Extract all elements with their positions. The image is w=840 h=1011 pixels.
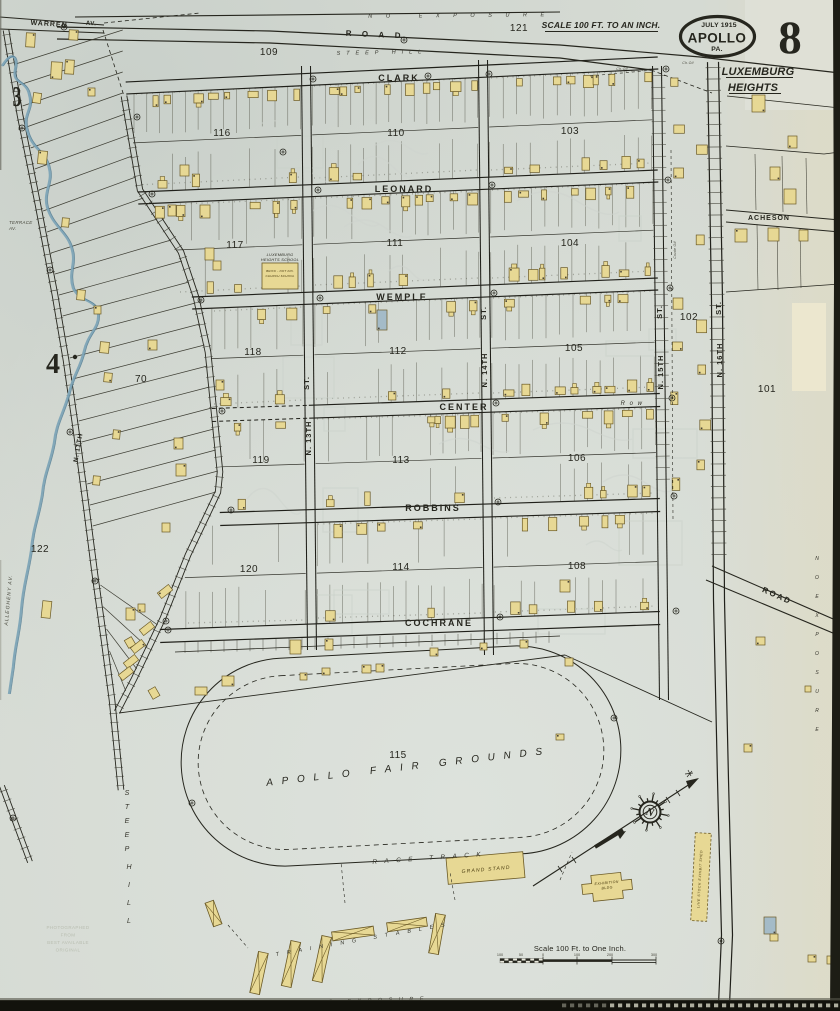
svg-text:WEMPLE: WEMPLE <box>376 292 428 302</box>
svg-text:200: 200 <box>607 953 613 957</box>
svg-text:121: 121 <box>510 23 528 34</box>
svg-text:ST.: ST. <box>302 376 311 390</box>
svg-text:50: 50 <box>519 953 523 957</box>
svg-text:Scale 100 Ft. to One Inch.: Scale 100 Ft. to One Inch. <box>534 944 626 953</box>
svg-text:ROBBINS: ROBBINS <box>405 503 461 513</box>
svg-text:102: 102 <box>680 312 698 323</box>
svg-text:HEIGHTS SCHOOL: HEIGHTS SCHOOL <box>261 258 299 262</box>
svg-text:Crude Oil: Crude Oil <box>673 241 677 258</box>
svg-text:101: 101 <box>758 384 776 395</box>
svg-text:PHOTOGRAPHED: PHOTOGRAPHED <box>47 925 90 930</box>
svg-text:LUXEMBURG: LUXEMBURG <box>267 253 294 257</box>
svg-text:ORIGINAL: ORIGINAL <box>56 948 81 953</box>
svg-text:COCHRANE: COCHRANE <box>405 618 473 628</box>
svg-text:ACHESON: ACHESON <box>748 215 790 222</box>
svg-text:117: 117 <box>226 240 243 251</box>
svg-text:105: 105 <box>565 343 583 354</box>
svg-text:CENTER: CENTER <box>439 402 488 412</box>
svg-text:APOLLO: APOLLO <box>688 31 747 46</box>
svg-text:100: 100 <box>497 953 503 957</box>
svg-text:BEST AVAILABLE: BEST AVAILABLE <box>47 940 89 945</box>
svg-text:Ch.Oil: Ch.Oil <box>616 67 628 71</box>
svg-text:N. 14TH: N. 14TH <box>480 353 489 388</box>
svg-text:113: 113 <box>392 455 409 466</box>
svg-text:110: 110 <box>387 128 404 139</box>
svg-text:109: 109 <box>260 47 278 58</box>
svg-text:114: 114 <box>392 562 409 573</box>
svg-text:HEIGHTS: HEIGHTS <box>728 82 779 94</box>
svg-text:AV.: AV. <box>8 226 17 231</box>
svg-text:108: 108 <box>568 561 586 572</box>
svg-text:106: 106 <box>568 453 586 464</box>
svg-text:CHURCH SCHOOL: CHURCH SCHOOL <box>265 274 294 278</box>
svg-text:LEONARD: LEONARD <box>375 184 434 194</box>
svg-text:SCALE 100 FT. TO AN INCH.: SCALE 100 FT. TO AN INCH. <box>542 20 661 30</box>
svg-text:R o w: R o w <box>621 401 644 407</box>
svg-text:120: 120 <box>240 564 258 575</box>
svg-text:122: 122 <box>31 544 49 555</box>
svg-text:8: 8 <box>778 12 802 64</box>
svg-text:4: 4 <box>46 349 60 380</box>
svg-text:JULY 1915: JULY 1915 <box>701 22 736 29</box>
svg-text:118: 118 <box>244 347 261 358</box>
svg-text:119: 119 <box>252 455 269 466</box>
svg-text:N. 16TH: N. 16TH <box>715 343 724 378</box>
svg-text:104: 104 <box>561 238 579 249</box>
svg-text:100: 100 <box>574 953 580 957</box>
svg-text:PA.: PA. <box>711 46 722 53</box>
svg-text:70: 70 <box>135 374 147 385</box>
svg-text:AV.: AV. <box>86 21 97 28</box>
svg-text:111: 111 <box>387 238 404 249</box>
svg-text:N. 13TH: N. 13TH <box>304 421 313 456</box>
svg-text:BRICK - NOT FIN.: BRICK - NOT FIN. <box>266 269 294 273</box>
svg-text:ST.: ST. <box>479 306 488 320</box>
svg-text:CLARK: CLARK <box>378 73 420 83</box>
svg-text:Ch.Oil: Ch.Oil <box>682 61 694 65</box>
svg-text:N. 15TH: N. 15TH <box>656 355 665 390</box>
svg-text:LUXEMBURG: LUXEMBURG <box>722 66 795 78</box>
svg-text:116: 116 <box>213 128 230 139</box>
svg-text:300: 300 <box>651 953 657 957</box>
svg-text:0: 0 <box>542 953 544 957</box>
svg-text:3: 3 <box>13 82 22 113</box>
svg-text:FROM: FROM <box>61 933 76 938</box>
svg-text:TERRACE: TERRACE <box>9 220 33 225</box>
svg-text:103: 103 <box>561 126 579 137</box>
svg-text:ST.: ST. <box>655 305 664 319</box>
svg-text:115: 115 <box>389 750 406 761</box>
svg-text:ST.: ST. <box>714 301 723 315</box>
svg-text:112: 112 <box>389 346 406 357</box>
